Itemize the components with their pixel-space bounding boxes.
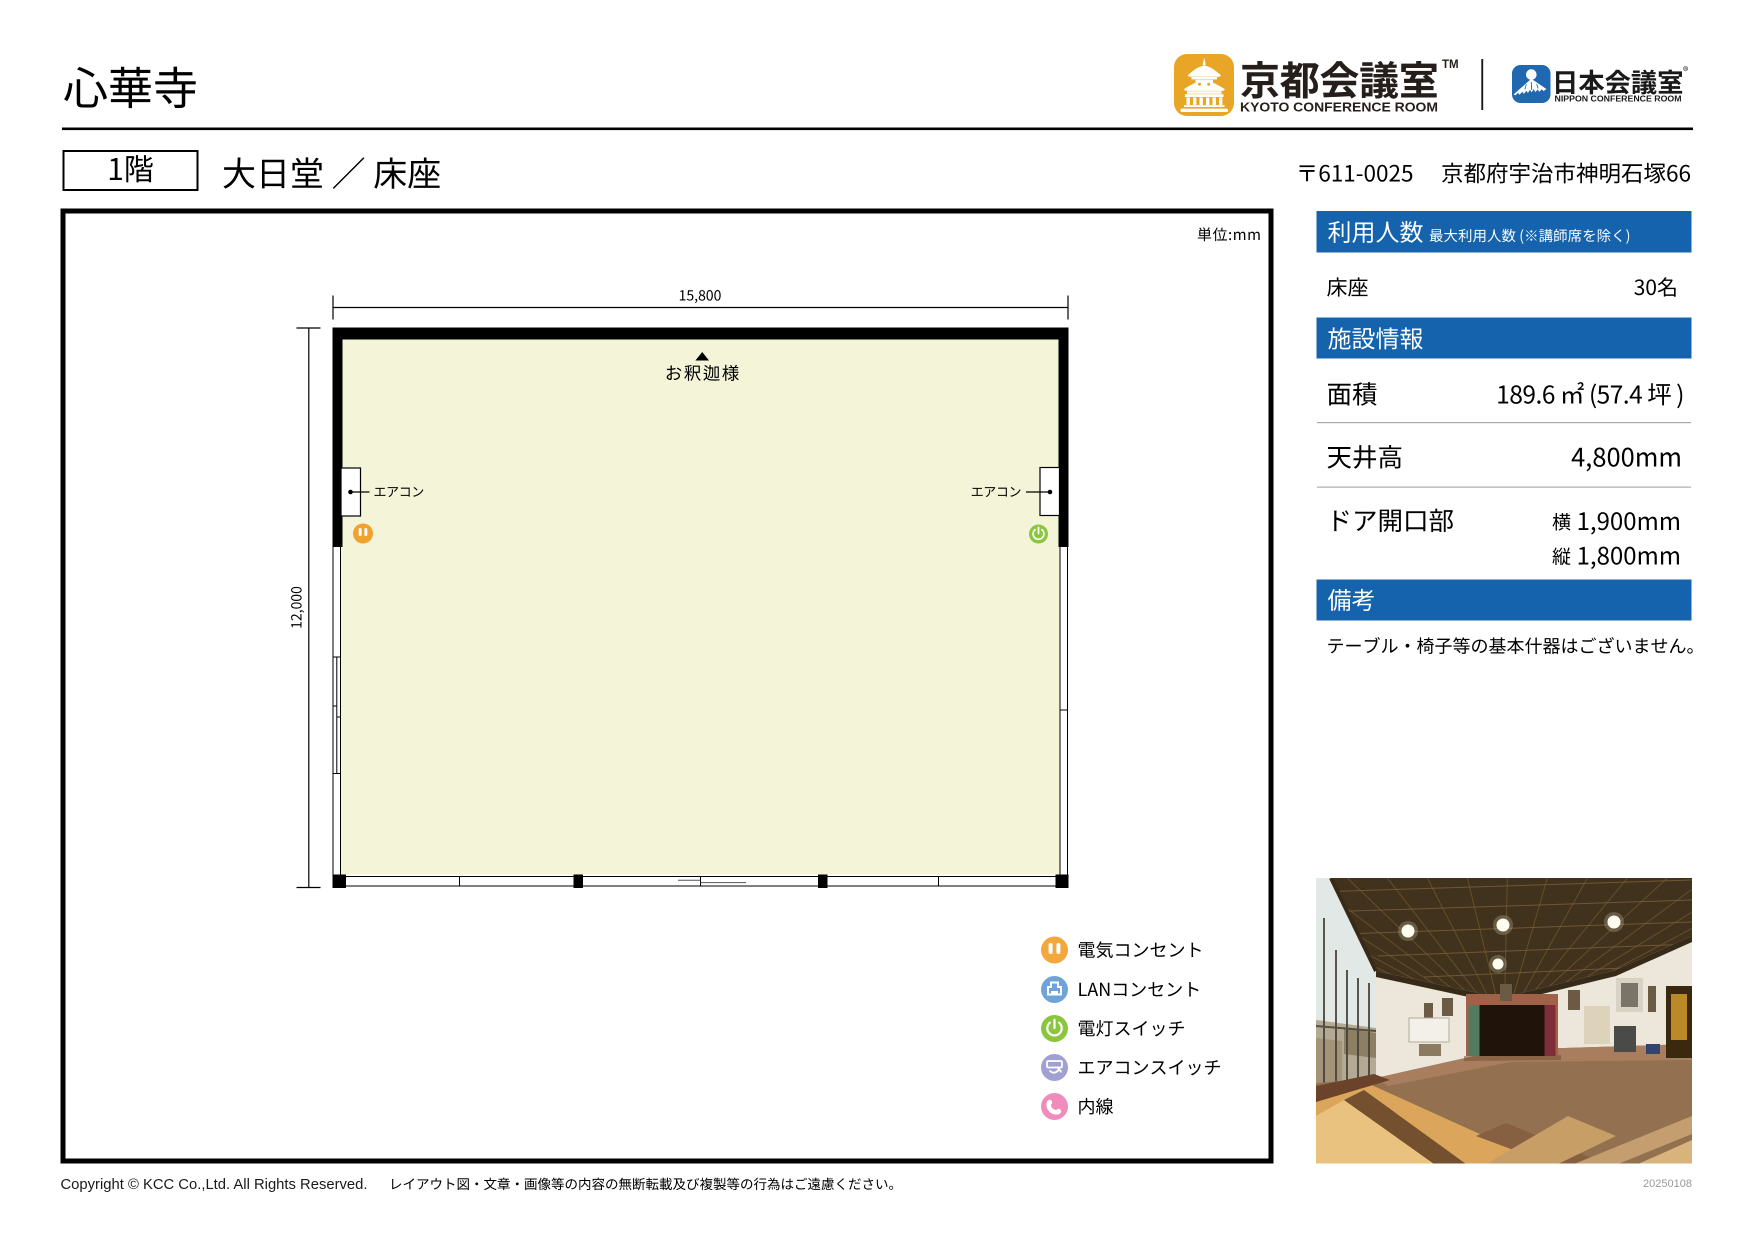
svg-text:NIPPON CONFERENCE ROOM: NIPPON CONFERENCE ROOM	[1555, 95, 1682, 104]
svg-text:20250108: 20250108	[1643, 1178, 1692, 1190]
svg-text:TM: TM	[1442, 59, 1459, 71]
svg-text:Copyright © KCC Co.,Ltd. All R: Copyright © KCC Co.,Ltd. All Rights Rese…	[61, 1177, 368, 1193]
svg-text:KYOTO CONFERENCE ROOM: KYOTO CONFERENCE ROOM	[1240, 100, 1438, 115]
